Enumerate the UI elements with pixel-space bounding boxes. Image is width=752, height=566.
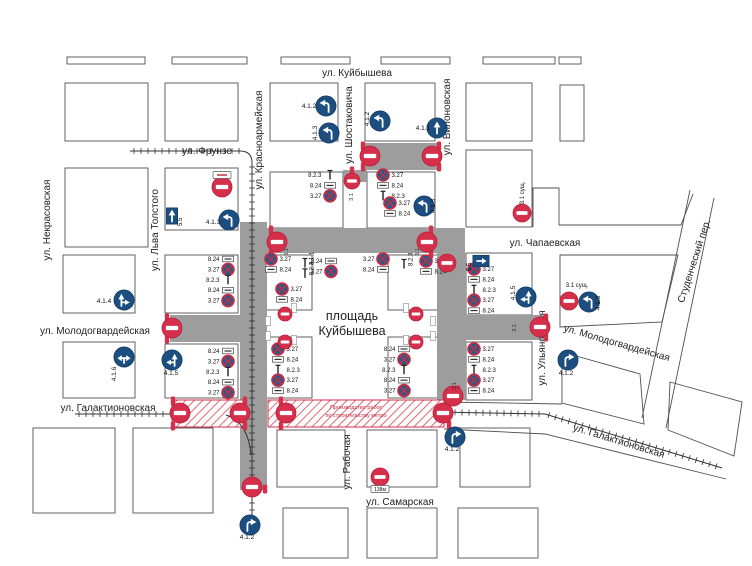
sign-3-1-label: 3.1 xyxy=(349,193,355,201)
sign-code-label: 8.24 xyxy=(483,309,495,315)
no-entry-sign xyxy=(162,318,182,338)
sign-code-label: 8.24 xyxy=(310,183,322,189)
blue-circle-icon xyxy=(319,123,339,143)
sign-code-label: 8.24 xyxy=(208,380,220,386)
sign-code-label: 8.24 xyxy=(208,257,220,263)
city-block xyxy=(560,85,584,141)
sign-code-label: 8.24 xyxy=(287,357,299,363)
no-entry-sign xyxy=(242,477,262,497)
info-plate-label: 138м xyxy=(374,487,386,493)
street-label: ул. Галактионовская xyxy=(60,403,155,414)
no-entry-bar-icon xyxy=(364,154,376,158)
city-block xyxy=(381,57,450,64)
blue-circle-icon xyxy=(162,350,182,370)
sign-code-label: 3.27 xyxy=(384,389,396,395)
small-sign-plate xyxy=(266,332,271,341)
sign-3-1-existing-label: 3.1 сущ. xyxy=(520,181,526,204)
sign-code-label: 8.24 xyxy=(208,288,220,294)
sign-code-label: 8.2.3 xyxy=(483,288,497,294)
city-block xyxy=(277,430,345,487)
no-entry-bar-icon xyxy=(174,411,186,415)
blue-circle-icon xyxy=(445,427,465,447)
no-entry-sign xyxy=(278,307,292,321)
sign-code-label: 8.2.3 xyxy=(308,173,322,179)
no-entry-sign xyxy=(409,307,423,321)
blue-circle-icon xyxy=(316,96,336,116)
sign-code-label: 4.1.4 xyxy=(97,298,112,305)
no-entry-bar-icon xyxy=(563,299,574,303)
street-label: ул. Некрасовская xyxy=(42,180,53,261)
street-label: ул. Льва Толстого xyxy=(150,189,161,271)
small-sign-plate xyxy=(404,304,409,313)
no-entry-bar-icon xyxy=(516,211,527,215)
page: 3. Репетиция парада без техники: с 16 ча… xyxy=(0,0,752,566)
blue-circle-icon xyxy=(240,515,260,535)
sign-code-label: 8.24 xyxy=(483,277,495,283)
sign-code-label: 8.24 xyxy=(392,183,404,189)
no-entry-sign xyxy=(230,403,250,423)
small-sign-plate xyxy=(266,317,271,326)
no-entry-sign xyxy=(560,292,578,310)
construction-label-line2: по строительству метро xyxy=(325,413,386,419)
square-label-line2: Куйбышева xyxy=(318,324,385,338)
closure-post xyxy=(279,422,283,431)
sign-code-label: 3.27 xyxy=(310,194,322,200)
sign-code-label: 8.24 xyxy=(291,297,303,303)
city-block xyxy=(133,428,213,513)
sign-code-label: 3.27 xyxy=(483,378,495,384)
sign-code-label: 4.1.3 xyxy=(206,219,221,226)
blue-circle-icon xyxy=(370,111,390,131)
sign-code-label: 8.24 xyxy=(384,347,396,353)
mandatory-direction-sign: 4.1.3 xyxy=(414,196,437,216)
blue-circle-icon xyxy=(114,290,134,310)
no-entry-sign xyxy=(344,173,360,189)
sign-3-1-label: 3.1 xyxy=(512,324,518,332)
city-block xyxy=(466,83,532,141)
sign-code-label: 3.27 xyxy=(483,347,495,353)
no-entry-sign xyxy=(170,403,190,423)
sign-code-label: 3.27 xyxy=(363,257,375,263)
sign-code-label: 3.27 xyxy=(384,357,396,363)
no-entry-sign xyxy=(433,403,453,423)
sign-code-label: 4.1.2 xyxy=(240,534,255,541)
no-entry-bar-icon xyxy=(421,240,433,244)
sign-code-label: 8.24 xyxy=(483,389,495,395)
no-entry-sign xyxy=(276,403,296,423)
street-label: ул. Фрунзе xyxy=(182,146,232,157)
sign-code-label: 5.5 xyxy=(467,262,473,271)
no-entry-bar-icon xyxy=(166,326,178,330)
no-entry-bar-icon xyxy=(426,154,438,158)
city-block xyxy=(483,57,555,64)
city-block xyxy=(33,428,115,513)
no-entry-sign xyxy=(360,146,380,166)
street-label: ул. Шостаковича xyxy=(344,86,355,164)
no-entry-sign xyxy=(530,317,550,337)
sign-code-label: 8.24 xyxy=(399,211,411,217)
sign-code-label: 3.27 xyxy=(208,299,220,305)
sign-code-label: 4.1.2 xyxy=(559,370,574,377)
closure-post xyxy=(171,422,175,431)
no-entry-bar-icon xyxy=(347,179,357,182)
small-sign-plate xyxy=(292,304,297,313)
sign-3-1-label: 3.1 xyxy=(284,248,290,256)
no-entry-sign xyxy=(409,335,423,349)
sign-code-label: 3.27 xyxy=(399,201,411,207)
sign-code-label: 8.24 xyxy=(311,259,323,265)
city-block xyxy=(165,83,238,141)
no-entry-bar-icon xyxy=(280,411,292,415)
street-label: ул. Самарская xyxy=(366,497,434,508)
sign-code-label: 3.27 xyxy=(280,257,292,263)
no-entry-bar-icon xyxy=(234,411,246,415)
sign-code-label: 8.2.3 xyxy=(382,368,396,374)
sign-code-label: 3.27 xyxy=(392,173,404,179)
no-entry-bar-icon xyxy=(216,185,228,189)
blue-circle-icon xyxy=(558,350,578,370)
street-map-canvas: Производство работпо строительству метро… xyxy=(0,0,752,566)
street-label: ул. Рабочая xyxy=(341,434,353,489)
small-sign-plate xyxy=(404,336,409,345)
city-block xyxy=(283,508,348,558)
street-label: ул. Куйбышева xyxy=(322,67,392,79)
no-entry-sign xyxy=(212,177,232,197)
sign-3-1-existing-label: 3.1 сущ. xyxy=(566,283,589,289)
street-label: ул. Молодогвардейская xyxy=(40,326,150,337)
street-label: ул. Вилоновская xyxy=(442,79,453,156)
city-block xyxy=(458,508,538,558)
info-plate xyxy=(213,172,231,179)
mandatory-direction-sign: 4.1.3 xyxy=(312,123,339,143)
closure-post xyxy=(263,485,267,494)
sign-code-label: 8.2.3 xyxy=(287,368,301,374)
small-sign-plate xyxy=(431,317,436,326)
sign-code-label: 4.1.3 xyxy=(430,198,437,213)
sign-code-label: 3.27 xyxy=(483,298,495,304)
blue-circle-icon xyxy=(219,210,239,230)
sign-code-label: 3.27 xyxy=(208,391,220,397)
no-entry-sign xyxy=(513,204,531,222)
sign-code-label: 3.27 xyxy=(208,359,220,365)
sign-code-label: 4.1.3 xyxy=(312,125,319,140)
construction-label-line1: Производство работ xyxy=(330,405,383,411)
sign-code-label: 8.2.3 xyxy=(206,278,220,284)
sign-code-label: 3.27 xyxy=(483,267,495,273)
no-entry-sign xyxy=(438,254,456,272)
street-label: ул. Красноармейская xyxy=(254,91,265,190)
sign-code-label: 8.2.3 xyxy=(206,370,220,376)
no-entry-bar-icon xyxy=(374,475,385,479)
sign-code-label: 4.1.3 xyxy=(595,295,602,310)
no-entry-sign xyxy=(278,335,292,349)
sign-code-label: 5.5 xyxy=(178,217,184,226)
sign-code-label: 8.2.3 xyxy=(483,368,497,374)
city-block xyxy=(559,57,581,64)
blue-circle-icon xyxy=(114,347,134,367)
city-block xyxy=(281,57,350,64)
no-entry-bar-icon xyxy=(412,313,421,316)
sign-code-label: 4.1.1 xyxy=(416,125,431,132)
sign-code-label: 4.1.2 xyxy=(364,111,371,126)
no-entry-bar-icon xyxy=(271,240,283,244)
closure-post xyxy=(243,422,247,431)
city-block xyxy=(172,57,247,64)
no-entry-bar-icon xyxy=(441,261,452,265)
sign-code-label: 3.27 xyxy=(311,269,323,275)
no-entry-sign xyxy=(371,468,389,486)
sign-code-label: 3.27 xyxy=(291,287,303,293)
sign-3-1-label: 3.1 xyxy=(415,248,421,256)
sign-code-label: 4.1.2 xyxy=(302,103,317,110)
sign-code-label: 3.27 xyxy=(287,378,299,384)
sign-code-label: 4.1.2 xyxy=(445,446,460,453)
sign-code-label: 8.24 xyxy=(384,378,396,384)
city-block xyxy=(65,168,148,247)
no-entry-bar-icon xyxy=(412,341,421,344)
sign-code-label: 8.2.3 xyxy=(409,252,415,266)
city-block xyxy=(460,428,530,487)
sign-code-label: 4.1.6 xyxy=(111,366,118,381)
city-block xyxy=(67,57,145,64)
info-plate: 138м xyxy=(371,486,389,494)
small-sign-plate xyxy=(431,332,436,341)
no-entry-bar-icon xyxy=(281,341,290,344)
sign-code-label: 8.24 xyxy=(208,349,220,355)
square-label-line1: площадь xyxy=(326,309,378,323)
sign-code-label: 8.24 xyxy=(483,357,495,363)
street-label: ул. Чапаевская xyxy=(510,238,581,249)
sign-code-label: 4.1.5 xyxy=(164,370,179,377)
no-entry-sign xyxy=(422,146,442,166)
no-entry-bar-icon xyxy=(246,485,258,489)
no-entry-bar-icon xyxy=(447,394,459,398)
sign-code-label: 8.24 xyxy=(287,389,299,395)
city-block xyxy=(367,508,437,558)
city-block xyxy=(65,83,148,141)
sign-3-1-label: 3.1 xyxy=(452,382,458,390)
no-entry-bar-icon xyxy=(281,313,290,316)
sign-code-label: 3.27 xyxy=(208,267,220,273)
no-entry-bar-icon xyxy=(534,325,546,329)
no-entry-bar-icon xyxy=(437,411,449,415)
sign-code-label: 4.1.5 xyxy=(510,285,517,300)
sign-code-label: 8.24 xyxy=(280,267,292,273)
sign-code-label: 8.24 xyxy=(363,267,375,273)
blue-circle-icon xyxy=(516,287,536,307)
